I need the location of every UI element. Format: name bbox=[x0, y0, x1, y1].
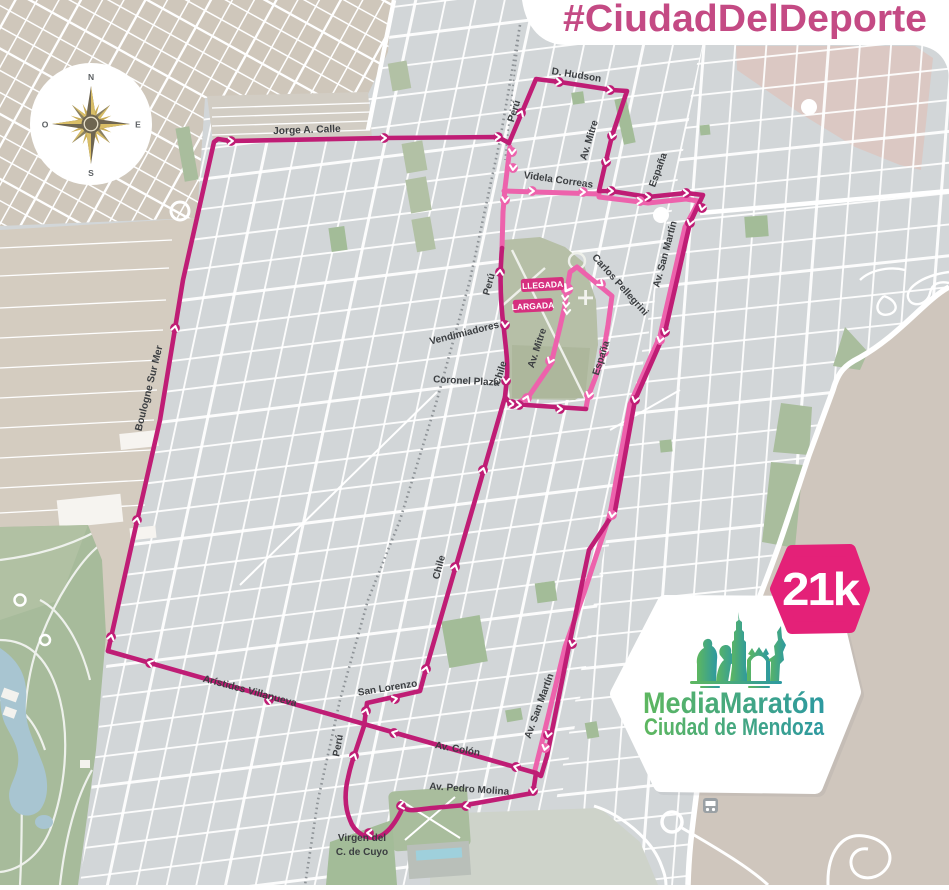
svg-text:21k: 21k bbox=[782, 563, 861, 615]
svg-text:S: S bbox=[88, 168, 94, 178]
svg-text:E: E bbox=[135, 120, 141, 130]
svg-text:N: N bbox=[88, 72, 94, 82]
svg-text:Ciudad de Mendoza: Ciudad de Mendoza bbox=[644, 714, 825, 741]
svg-text:Virgen del: Virgen del bbox=[338, 833, 386, 844]
svg-text:C. de Cuyo: C. de Cuyo bbox=[336, 847, 388, 858]
svg-text:#CiudadDelDeporte: #CiudadDelDeporte bbox=[563, 0, 927, 40]
svg-text:O: O bbox=[42, 120, 49, 130]
